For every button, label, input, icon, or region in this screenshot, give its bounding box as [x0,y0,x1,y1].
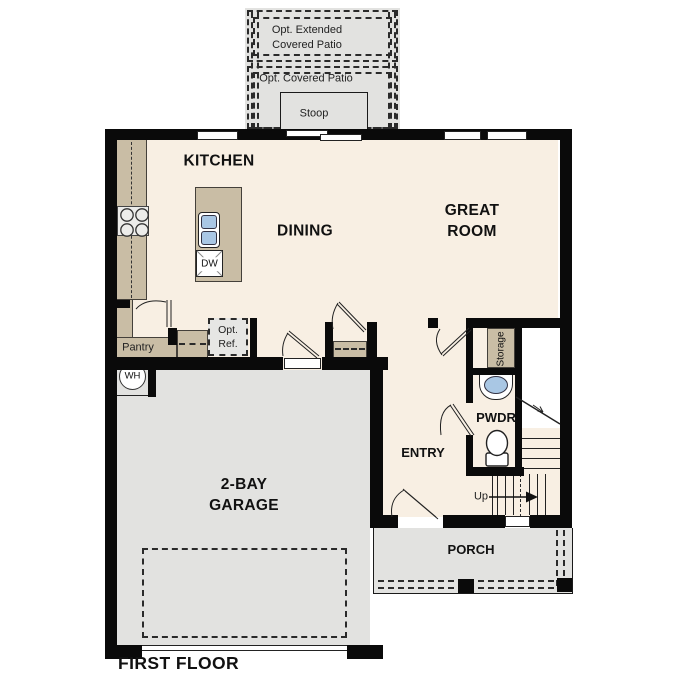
wall-pantry-stub [168,328,177,345]
label-opt-ref: Opt. Ref. [209,323,247,351]
label-wh: WH [125,371,141,384]
stair-tread [522,438,560,439]
room-label-dining: DINING [277,222,333,243]
wall-garage-right [370,357,383,528]
stairwell-void [522,328,560,428]
room-label-pwdr: PWDR [476,409,516,427]
plan-title: FIRST FLOOR [118,653,239,674]
stair-tread [497,474,498,515]
wall-entry-bottom [370,515,398,528]
label-pantry: Pantry [122,341,154,356]
cooktop-icon [117,206,149,236]
stair-tread [522,448,560,449]
room-label-entry: ENTRY [401,444,445,462]
label-storage: Storage [494,331,508,366]
porch-post [557,578,572,592]
sliding-door [320,134,362,141]
window [197,131,238,140]
stair-tread [529,474,530,515]
patio-column-mark [251,12,253,129]
room-label-great-room: GREAT ROOM [432,201,512,243]
wall-pwdr-left [466,328,473,403]
wall-entry-bottom [530,515,572,528]
entry-closet-dashed [335,348,365,350]
wall-left [105,129,117,659]
wall-counter-stub [117,300,130,308]
stair-tread [522,468,560,469]
mud-counter-dashed [179,343,206,345]
patio-column-mark [394,12,396,129]
wall-storage-bottom [473,368,518,375]
label-up: Up [474,490,488,505]
stair-boundary [492,474,493,515]
wall-garage-house [105,357,283,370]
wall-wh-stub [148,360,156,397]
label-opt-covered-patio: Opt. Covered Patio [236,72,376,87]
sink-basin [201,231,217,245]
stair-floor [522,428,560,517]
window [505,516,530,527]
wall-closet-left-stub [325,322,333,362]
label-stoop: Stoop [300,107,329,122]
garage-entry-threshold [284,358,321,369]
window [444,131,481,140]
wall-greatroom-south [428,318,438,328]
pwdr-sink-icon [484,376,508,394]
garage-opening-line [142,645,347,646]
wall-optref-stub [250,318,257,357]
floor-plan: KITCHEN DINING GREAT ROOM 2-BAY GARAGE E… [0,0,687,687]
wall-stair-left [515,322,522,467]
stair-tread [522,458,560,459]
label-dw: DW [200,257,219,271]
wall-closet-right [367,322,377,370]
stair-tread [537,474,538,515]
label-opt-extended-patio: Opt. Extended Covered Patio [259,23,355,53]
garage-opening-line [142,650,347,651]
porch-post [458,579,474,593]
room-label-garage: 2-BAY GARAGE [194,475,294,517]
wall-pwdr-bottom [466,467,524,476]
room-label-porch: PORCH [448,541,495,559]
sink-basin [201,215,217,229]
patio-column-mark [388,12,390,129]
wall-garage-bottom [347,645,383,659]
stair-tread [513,474,514,515]
stair-tread [505,474,506,515]
garage-door-outline [142,548,347,638]
wall-pwdr-left [466,435,473,470]
wall-entry-bottom [443,515,505,528]
stair-tread [545,474,546,515]
stair-up-dashed [520,474,521,517]
window [487,131,527,140]
room-label-kitchen: KITCHEN [184,152,255,173]
wall-right [560,129,572,528]
